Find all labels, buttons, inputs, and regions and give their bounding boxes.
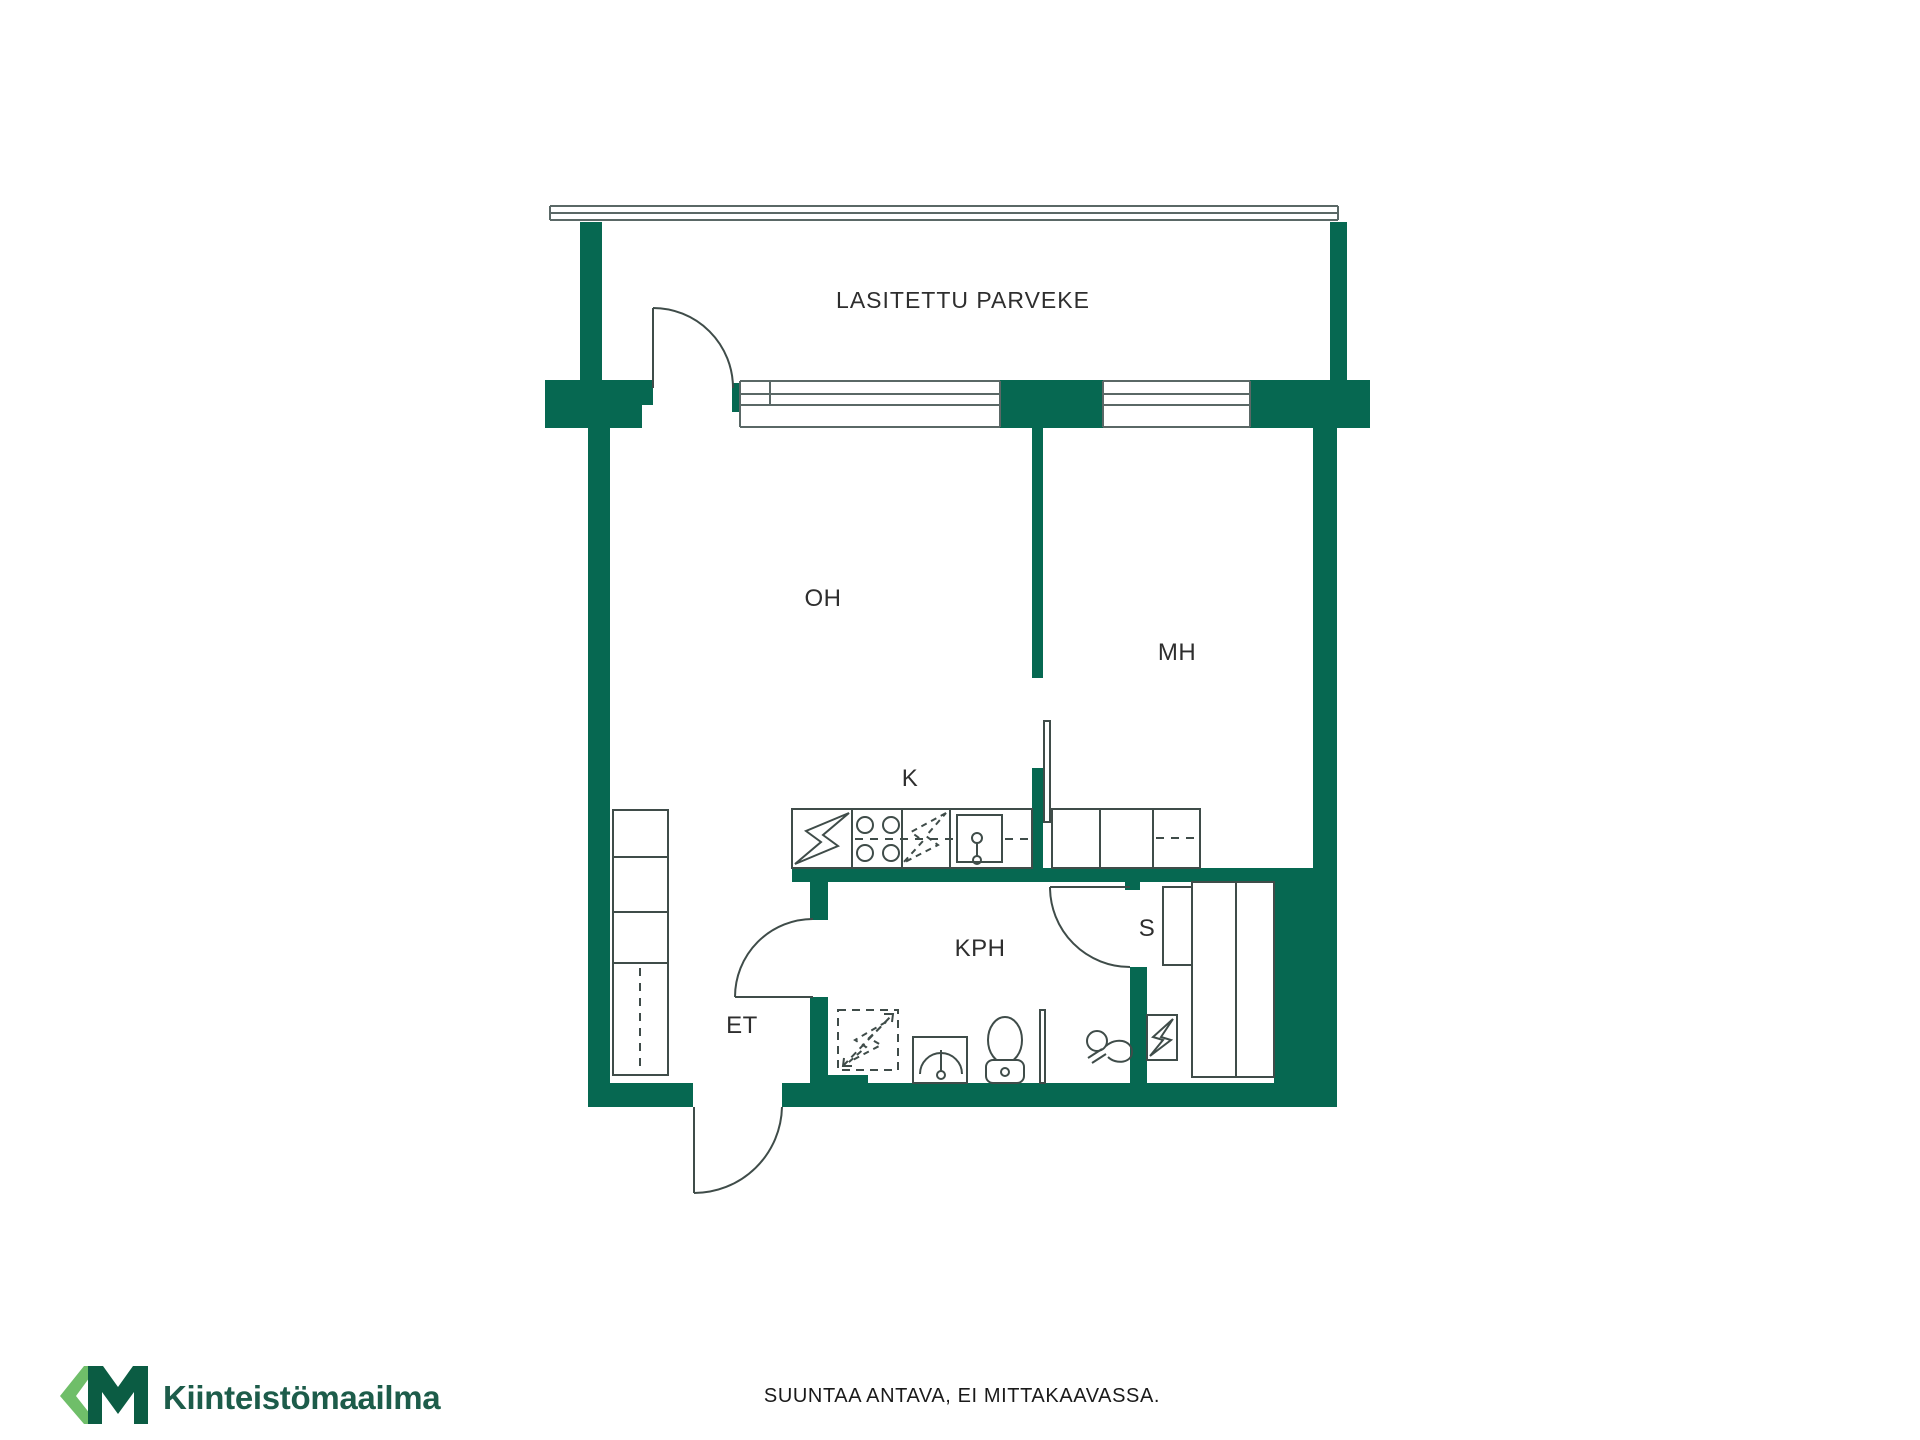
shower-mark — [1092, 1054, 1106, 1063]
wall-segment — [782, 1083, 1337, 1107]
wall-segment — [810, 997, 828, 1083]
doors-layer — [653, 308, 1130, 1193]
sauna-bench — [1236, 882, 1274, 1077]
washing-machine-bolt-icon — [849, 1022, 886, 1062]
room-label-living-room: OH — [805, 585, 842, 612]
km-logo-mark — [60, 1366, 148, 1424]
wall-segment — [545, 405, 642, 428]
entrance-door-arc — [694, 1107, 782, 1193]
wall-segment — [1130, 967, 1147, 1083]
balcony-door-arc — [653, 308, 733, 388]
wall-segment — [828, 1075, 868, 1083]
wall-segment — [580, 222, 602, 380]
brand-wordmark: Kiinteistömaailma — [163, 1379, 441, 1416]
wall-segment — [588, 1083, 693, 1107]
wall-segment — [1313, 428, 1337, 882]
floorplan-canvas: LASITETTU PARVEKE OH MH K KPH S ET Kiint… — [0, 0, 1920, 1440]
toilet-bowl — [988, 1017, 1022, 1063]
floorplan-page: LASITETTU PARVEKE OH MH K KPH S ET Kiint… — [0, 0, 1920, 1440]
room-label-bathroom: KPH — [955, 935, 1006, 962]
room-label-balcony: LASITETTU PARVEKE — [836, 287, 1090, 313]
wall-segment — [810, 882, 828, 920]
sauna-bench — [1163, 887, 1192, 965]
wall-segment — [588, 428, 610, 1107]
sauna-door-arc — [1050, 887, 1130, 967]
bathroom-door-arc — [735, 919, 813, 997]
wall-segment — [1032, 768, 1043, 882]
fixtures-layer — [613, 721, 1274, 1083]
wall-segment — [1330, 222, 1347, 380]
room-label-sauna: S — [1139, 915, 1156, 942]
shower-hose-icon — [1106, 1041, 1132, 1062]
windows-layer — [550, 206, 1338, 427]
room-labels-layer: LASITETTU PARVEKE OH MH K KPH S ET — [726, 287, 1196, 1039]
room-label-entry: ET — [726, 1012, 758, 1039]
wall-segment — [1000, 380, 1103, 428]
room-label-kitchen: K — [902, 765, 919, 792]
wall-segment — [1032, 428, 1043, 678]
shower-screen — [1040, 1010, 1045, 1083]
wall-segment — [1274, 882, 1337, 1083]
toilet-tank — [986, 1060, 1024, 1083]
wall-segment — [792, 868, 1313, 882]
kitchen-sink — [957, 815, 1002, 862]
room-label-bedroom: MH — [1158, 639, 1196, 666]
sauna-bench — [1192, 882, 1236, 1077]
footer-disclaimer: SUUNTAA ANTAVA, EI MITTAKAAVASSA. — [764, 1385, 1160, 1407]
wall-segment — [545, 380, 653, 405]
km-logo-m — [88, 1366, 148, 1424]
glass-partition — [1044, 721, 1050, 822]
wall-segment — [1250, 380, 1370, 428]
shower-icon — [1087, 1031, 1107, 1051]
